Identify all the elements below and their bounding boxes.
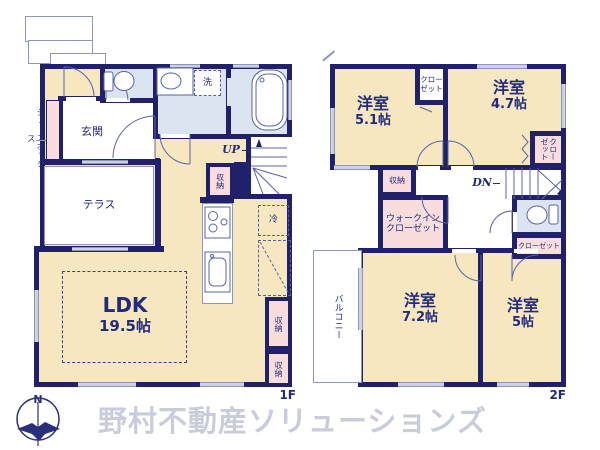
window-room-b-top bbox=[477, 64, 527, 69]
window-room-c-bottom bbox=[398, 382, 444, 387]
storage-b-label: 収納 bbox=[274, 361, 283, 377]
toilet-2f-room bbox=[512, 195, 566, 237]
compass-needle bbox=[17, 422, 60, 441]
toilet-1f-door-gap bbox=[106, 98, 130, 102]
genkan-label: 玄関 bbox=[70, 126, 114, 139]
terrace-label: テラス bbox=[83, 199, 116, 212]
compass-north-letter: N bbox=[33, 393, 42, 406]
dn-label: DN bbox=[470, 176, 494, 189]
storage-a-label: 収納 bbox=[274, 316, 283, 332]
room-b-size: 4.7帖 bbox=[476, 97, 542, 113]
storage-b: 収納 bbox=[265, 350, 292, 387]
watermark: 野村不動産ソリューションズ bbox=[98, 398, 538, 440]
wall-room-c-d bbox=[478, 248, 483, 387]
window-room-a-bottom bbox=[334, 165, 370, 170]
storage-2f: 収納 bbox=[378, 165, 416, 197]
fridge-space: 冷 bbox=[258, 205, 289, 236]
room-c-door-gap bbox=[452, 249, 476, 253]
closet-side: クローゼット bbox=[530, 131, 566, 168]
entry-steps-upper bbox=[25, 16, 93, 42]
compass-icon: N bbox=[8, 388, 70, 450]
window-bath-top bbox=[233, 64, 259, 68]
closet-small: クローゼット bbox=[512, 233, 566, 259]
shoes-box-pointer bbox=[36, 140, 46, 141]
laundry-label: 洗 bbox=[203, 78, 212, 88]
window-room-a-left bbox=[330, 108, 335, 154]
balcony: バルコニー bbox=[313, 250, 362, 383]
closet-side-label: クローゼット bbox=[539, 137, 556, 163]
roof-tick bbox=[322, 50, 334, 61]
room-a-size: 5.1帖 bbox=[338, 113, 408, 129]
window-bath-right bbox=[288, 80, 292, 120]
dn-pointer bbox=[493, 183, 500, 184]
balcony-label: バルコニー bbox=[332, 294, 342, 339]
pantry-space bbox=[258, 240, 291, 296]
kitchen-counter bbox=[202, 203, 233, 304]
ldk-size: 19.5帖 bbox=[84, 317, 166, 335]
room-c-size: 7.2帖 bbox=[386, 310, 454, 326]
stairs-1f bbox=[246, 137, 292, 199]
room-a-name: 洋室 bbox=[338, 94, 408, 113]
stair-storage: 収納 bbox=[206, 163, 234, 199]
ldk-label: LDK 19.5帖 bbox=[84, 293, 166, 335]
room-d-size: 5帖 bbox=[492, 315, 554, 331]
toilet-2f-door-gap bbox=[513, 212, 517, 232]
room-c-name: 洋室 bbox=[386, 291, 454, 310]
room-d-door-gap bbox=[514, 249, 538, 253]
fridge-label: 冷 bbox=[269, 215, 278, 225]
storage-2f-label: 収納 bbox=[389, 176, 405, 185]
wall-terrace-right bbox=[155, 159, 161, 252]
closet-top-label: クローゼット bbox=[420, 76, 443, 93]
room-d-label: 洋室 5帖 bbox=[492, 296, 554, 331]
shoes-box bbox=[46, 100, 60, 160]
window-genkan-terrace bbox=[82, 160, 128, 164]
room-b-door-gap bbox=[451, 166, 473, 170]
walk-in-closet: ウォークインクローゼット bbox=[378, 195, 448, 253]
room-b-name: 洋室 bbox=[476, 78, 542, 97]
floor-plan-image: テラス 玄関 シューズボックス 洗 UP 収納 bbox=[0, 0, 600, 450]
window-room-d-bottom bbox=[497, 382, 529, 387]
genkan-door-gap bbox=[66, 97, 96, 101]
walk-in-closet-label: ウォークインクローゼット bbox=[385, 214, 441, 235]
window-ldk-bottom-left bbox=[78, 382, 136, 387]
floor2-label: 2F bbox=[540, 388, 566, 402]
terrace: テラス bbox=[44, 166, 154, 245]
bathroom-door-gap bbox=[227, 78, 231, 106]
up-pointer bbox=[242, 150, 250, 151]
room-a-door-gap bbox=[418, 166, 440, 170]
wall-stairs-left bbox=[234, 162, 248, 199]
window-washroom-top bbox=[170, 64, 200, 68]
room-b-label: 洋室 4.7帖 bbox=[476, 78, 542, 113]
window-room-b-right bbox=[561, 84, 566, 128]
ldk-name: LDK bbox=[84, 293, 166, 317]
washroom-door-gap bbox=[160, 134, 190, 138]
wall-room-a-b bbox=[443, 98, 448, 170]
storage-a: 収納 bbox=[265, 297, 292, 350]
shoes-box-label: シューズボックス bbox=[14, 106, 44, 170]
window-terrace-ldk bbox=[72, 247, 128, 251]
up-label: UP bbox=[218, 143, 244, 156]
window-ldk-left bbox=[34, 290, 39, 342]
balcony-sliding-door bbox=[358, 268, 363, 330]
room-c-label: 洋室 7.2帖 bbox=[386, 291, 454, 326]
room-a-label: 洋室 5.1帖 bbox=[338, 94, 408, 129]
window-ldk-bottom-right bbox=[200, 382, 244, 387]
stair-storage-label: 収納 bbox=[215, 173, 224, 189]
room-d-name: 洋室 bbox=[492, 296, 554, 315]
laundry-space: 洗 bbox=[194, 70, 221, 96]
bathroom bbox=[226, 64, 292, 139]
